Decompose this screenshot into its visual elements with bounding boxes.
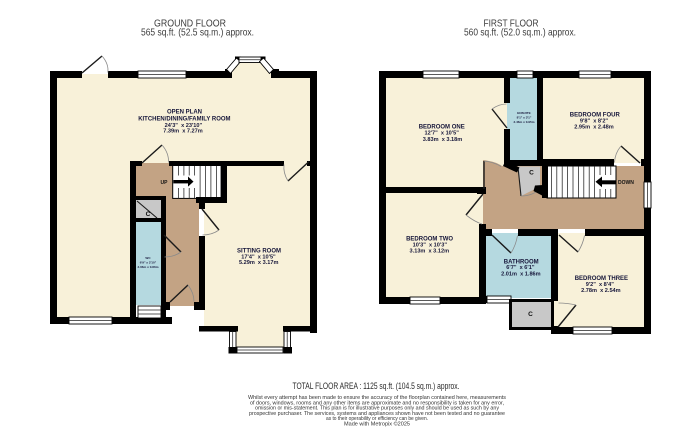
svg-text:6'9" x 2'10": 6'9" x 2'10"	[140, 261, 157, 265]
svg-text:Made with Metropix ©2025: Made with Metropix ©2025	[344, 421, 410, 428]
svg-text:565 sq.ft. (52.5 sq.m.) approx: 565 sq.ft. (52.5 sq.m.) approx.	[141, 27, 254, 39]
svg-text:WC: WC	[145, 256, 151, 260]
svg-text:560 sq.ft. (52.0 sq.m.) approx: 560 sq.ft. (52.0 sq.m.) approx.	[464, 27, 576, 39]
svg-text:UP: UP	[161, 180, 169, 186]
svg-text:KITCHEN/DINING/FAMILY ROOM: KITCHEN/DINING/FAMILY ROOM	[138, 117, 230, 123]
svg-text:3.83m x 3.18m: 3.83m x 3.18m	[423, 137, 463, 143]
svg-text:TOTAL FLOOR AREA : 1125 sq.ft.: TOTAL FLOOR AREA : 1125 sq.ft. (104.5 sq…	[293, 381, 460, 392]
svg-text:3.13m x 3.12m: 3.13m x 3.12m	[410, 249, 450, 255]
svg-text:ENSUITE: ENSUITE	[517, 111, 530, 115]
svg-text:9'8" x 8'2": 9'8" x 8'2"	[580, 119, 609, 125]
svg-text:5.29m x 3.17m: 5.29m x 3.17m	[239, 260, 279, 266]
svg-text:9'2" x 8'4": 9'2" x 8'4"	[586, 282, 615, 288]
svg-text:OPEN PLAN: OPEN PLAN	[167, 110, 202, 116]
svg-text:2.46m x 0.95m: 2.46m x 0.95m	[514, 120, 535, 124]
svg-text:2.01m x 1.86m: 2.01m x 1.86m	[501, 271, 541, 277]
svg-text:2.95m x 2.48m: 2.95m x 2.48m	[574, 125, 614, 131]
svg-text:7.39m x 7.27m: 7.39m x 7.27m	[163, 129, 203, 135]
svg-text:12'7" x 10'5": 12'7" x 10'5"	[424, 131, 459, 137]
svg-text:6'7" x 6'1": 6'7" x 6'1"	[506, 265, 535, 271]
svg-text:DOWN: DOWN	[618, 180, 634, 186]
svg-text:10'3" x 10'3": 10'3" x 10'3"	[413, 243, 448, 249]
svg-text:C: C	[146, 211, 151, 218]
svg-text:2.06m x 0.86m: 2.06m x 0.86m	[138, 265, 159, 269]
svg-text:8'1" x 3'1": 8'1" x 3'1"	[517, 116, 532, 120]
svg-text:2.78m x 2.54m: 2.78m x 2.54m	[581, 288, 621, 294]
svg-text:C: C	[529, 170, 534, 177]
svg-text:C: C	[528, 311, 533, 318]
